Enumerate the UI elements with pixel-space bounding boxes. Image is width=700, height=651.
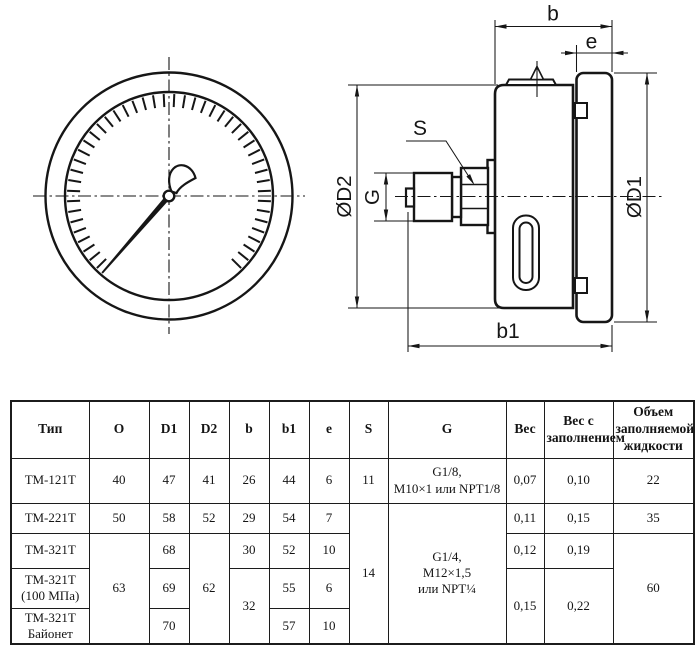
cell-type: ТМ-321Т <box>11 533 89 568</box>
dial-tick <box>67 201 80 202</box>
dial-tick <box>257 180 270 182</box>
cell-type: ТМ-321Т Байонет <box>11 608 89 644</box>
cell-s: 11 <box>349 458 388 503</box>
dial-tick <box>218 111 225 122</box>
dim-arrowhead <box>408 344 420 348</box>
dim-arrowhead <box>612 51 624 55</box>
cell-e: 7 <box>309 503 349 533</box>
gauge-needle <box>101 194 171 273</box>
cell-type: ТМ-321Т (100 МПа) <box>11 568 89 608</box>
dial-tick <box>113 111 120 122</box>
flange-tab-top <box>575 103 587 118</box>
dim-label-e: e <box>586 31 598 54</box>
dial-tick <box>123 105 129 117</box>
dial-tick <box>90 252 100 260</box>
header-s: S <box>349 401 388 458</box>
dial-tick <box>225 117 233 127</box>
cell-b1: 44 <box>269 458 309 503</box>
dial-tick <box>192 98 195 111</box>
dial-tick <box>97 259 106 268</box>
cell-wf: 0,22 <box>544 568 613 644</box>
dim-label-d1: ØD1 <box>623 176 646 218</box>
cell-vol: 22 <box>613 458 694 503</box>
cell-s: 14 <box>349 503 388 644</box>
dim-arrowhead <box>384 173 388 185</box>
relief-valve-base <box>506 80 556 86</box>
cell-b: 30 <box>229 533 269 568</box>
flange-tab-bottom <box>575 278 587 293</box>
cell-w: 0,15 <box>506 568 544 644</box>
dial-tick <box>84 140 95 147</box>
dial-tick <box>84 245 95 252</box>
cell-o: 63 <box>89 533 149 644</box>
header-type: Тип <box>11 401 89 458</box>
dial-tick <box>244 245 255 252</box>
cell-wf: 0,15 <box>544 503 613 533</box>
cell-d1: 68 <box>149 533 189 568</box>
cell-d2: 62 <box>189 533 229 644</box>
dial-tick <box>132 101 137 113</box>
dial-tick <box>78 150 90 156</box>
dial-tick <box>97 124 106 133</box>
header-o: O <box>89 401 149 458</box>
dial-tick <box>232 124 241 133</box>
dial-tick <box>244 140 255 147</box>
dial-tick <box>248 236 260 242</box>
header-e: e <box>309 401 349 458</box>
cell-b1: 55 <box>269 568 309 608</box>
dial-tick <box>78 236 90 242</box>
dial-tick <box>201 101 206 113</box>
table-header-row: Тип O D1 D2 b b1 e S G Вес Вес с заполне… <box>11 401 694 458</box>
dim-label-b1: b1 <box>496 320 519 343</box>
dim-label-s: S <box>413 117 427 140</box>
stem-tip <box>406 189 414 207</box>
dial-tick <box>255 170 268 173</box>
dial-tick <box>68 180 81 182</box>
cell-type: ТМ-121Т <box>11 458 89 503</box>
spec-table: Тип O D1 D2 b b1 e S G Вес Вес с заполне… <box>10 400 695 645</box>
dial-tick <box>67 191 80 192</box>
cell-g: G1/4, М12×1,5 или NPT¼ <box>388 503 506 644</box>
dial-tick <box>257 210 270 212</box>
dial-tick <box>74 159 86 164</box>
dim-label-d2: ØD2 <box>333 175 356 217</box>
dial-tick <box>209 105 215 117</box>
dim-arrowhead <box>601 24 613 28</box>
header-b1: b1 <box>269 401 309 458</box>
dim-arrowhead <box>645 73 649 85</box>
dim-arrowhead <box>355 85 359 97</box>
cell-b: 32 <box>229 568 269 644</box>
dial-tick <box>238 132 248 140</box>
dial-tick <box>248 150 260 156</box>
dial-tick <box>105 117 113 127</box>
header-wf: Вес с заполнением <box>544 401 613 458</box>
dim-arrowhead <box>384 210 388 222</box>
cell-o: 50 <box>89 503 149 533</box>
cell-vol: 35 <box>613 503 694 533</box>
dial-tick <box>143 98 146 111</box>
header-d2: D2 <box>189 401 229 458</box>
dim-label-g: G <box>361 189 384 205</box>
needle-counterweight <box>169 165 195 193</box>
cell-d1: 47 <box>149 458 189 503</box>
cell-w: 0,07 <box>506 458 544 503</box>
cell-type: ТМ-221Т <box>11 503 89 533</box>
cell-o: 40 <box>89 458 149 503</box>
cell-w: 0,12 <box>506 533 544 568</box>
dial-tick <box>174 94 175 107</box>
dim-arrowhead <box>601 344 613 348</box>
gauge-front-view <box>33 57 305 334</box>
dim-label-b: b <box>547 3 559 26</box>
cell-d1: 70 <box>149 608 189 644</box>
cell-vol: 60 <box>613 533 694 644</box>
dial-tick <box>238 252 248 260</box>
dial-tick <box>255 219 268 222</box>
dim-arrowhead <box>355 297 359 309</box>
header-vol: Объем заполняемой жидкости <box>613 401 694 458</box>
cell-b1: 57 <box>269 608 309 644</box>
cell-b1: 52 <box>269 533 309 568</box>
dim-arrowhead <box>565 51 577 55</box>
dial-tick <box>252 159 264 164</box>
header-b: b <box>229 401 269 458</box>
dim-arrowhead <box>495 24 507 28</box>
dial-tick <box>258 191 271 192</box>
dial-tick <box>164 94 165 107</box>
dim-arrowhead <box>645 311 649 323</box>
cell-e: 10 <box>309 533 349 568</box>
cell-b: 26 <box>229 458 269 503</box>
dial-tick <box>74 228 86 233</box>
dial-tick <box>258 201 271 202</box>
needle-hub <box>164 191 175 202</box>
cell-e: 6 <box>309 458 349 503</box>
dial-tick <box>68 210 81 212</box>
table-row: ТМ-221Т 50 58 52 29 54 7 14 G1/4, М12×1,… <box>11 503 694 533</box>
cell-b1: 54 <box>269 503 309 533</box>
technical-drawing: b e S b1 ØD2 G ØD1 <box>0 0 700 392</box>
header-w: Вес <box>506 401 544 458</box>
dial-tick <box>90 132 100 140</box>
dial-tick <box>153 95 155 108</box>
dial-tick <box>232 259 241 268</box>
dial-tick <box>183 95 185 108</box>
back-slot-inner <box>520 223 533 284</box>
dial-tick <box>71 219 84 222</box>
cell-d1: 69 <box>149 568 189 608</box>
cell-d2: 52 <box>189 503 229 533</box>
cell-e: 10 <box>309 608 349 644</box>
dial-tick <box>252 228 264 233</box>
cell-wf: 0,10 <box>544 458 613 503</box>
dial-tick <box>71 170 84 173</box>
cell-d2: 41 <box>189 458 229 503</box>
header-d1: D1 <box>149 401 189 458</box>
cell-b: 29 <box>229 503 269 533</box>
cell-d1: 58 <box>149 503 189 533</box>
cell-g: G1/8, М10×1 или NPT1/8 <box>388 458 506 503</box>
table-row: ТМ-121Т 40 47 41 26 44 6 11 G1/8, М10×1 … <box>11 458 694 503</box>
cell-e: 6 <box>309 568 349 608</box>
cell-wf: 0,19 <box>544 533 613 568</box>
gauge-datasheet: b e S b1 ØD2 G ØD1 Тип O D1 D2 b b1 e S … <box>0 0 700 651</box>
cell-w: 0,11 <box>506 503 544 533</box>
header-g: G <box>388 401 506 458</box>
